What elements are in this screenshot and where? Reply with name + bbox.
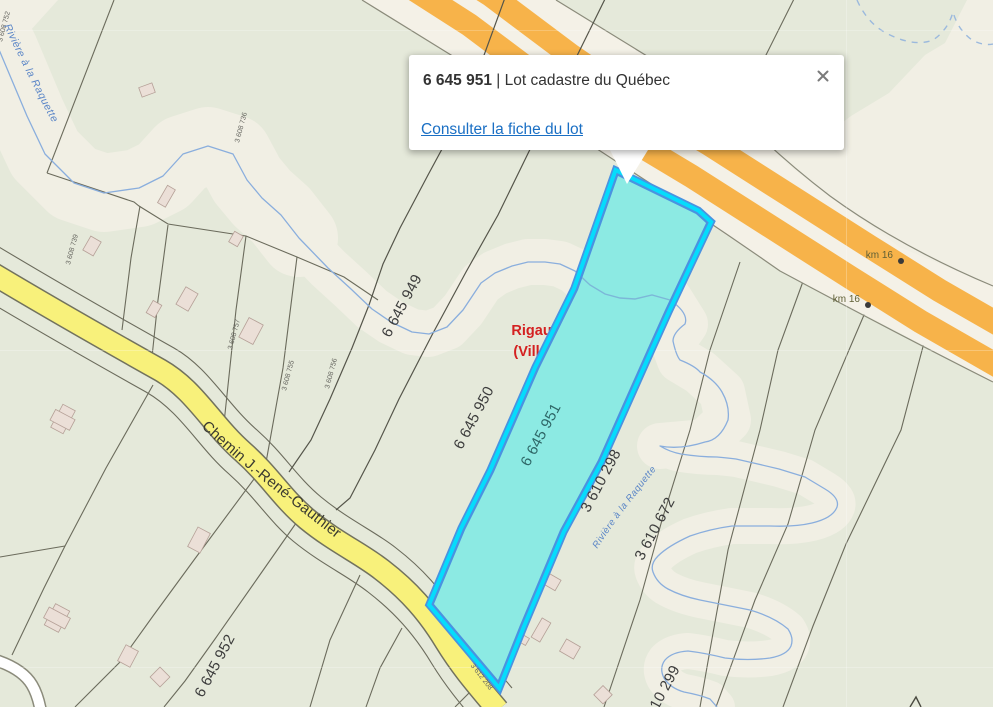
svg-text:km 16: km 16 (833, 294, 861, 305)
svg-text:km 16: km 16 (866, 250, 894, 261)
